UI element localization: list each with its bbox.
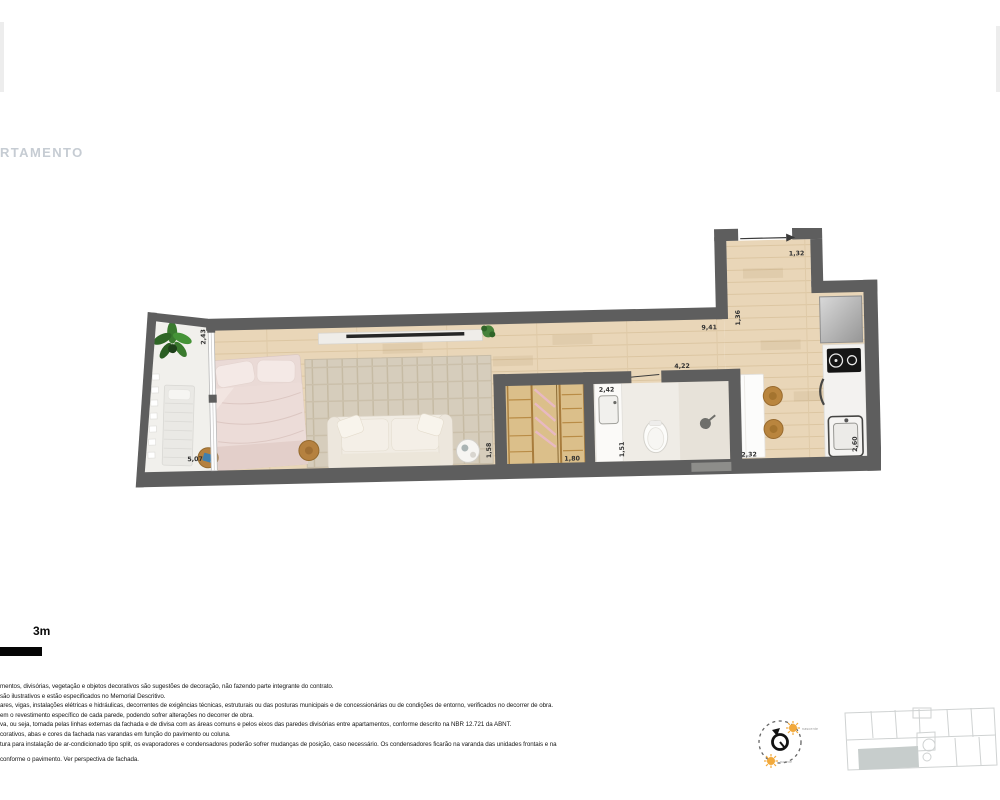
- dim-bedroom: 5,07: [187, 456, 203, 463]
- sunrise-sun-icon: [786, 721, 800, 735]
- fridge: [820, 296, 863, 343]
- page-edge-artifact-left: [0, 22, 4, 92]
- dim-kitchen: 2,60: [852, 436, 859, 452]
- disclaimer-line: corativos, abas e cores da fachada nas v…: [0, 730, 660, 740]
- disclaimer-line: em o revestimento específico de cada par…: [0, 711, 660, 721]
- sink-basin: [599, 395, 619, 423]
- lounge-mat: [162, 385, 194, 466]
- disclaimer-line: tura para instalação de ar-condicionado …: [0, 740, 660, 750]
- bed: [210, 354, 308, 470]
- keyplan-unit-highlight: [858, 746, 919, 770]
- wall-closet-bath-divider: [583, 372, 595, 464]
- side-table-right: [299, 440, 319, 460]
- dim-balcony: 2,43: [200, 329, 207, 345]
- kitchen: [818, 296, 867, 459]
- sunrise-label: nascente: [802, 727, 818, 731]
- wall-closet-left: [493, 374, 507, 466]
- wall-entry-right: [792, 228, 822, 239]
- dim-dining-table: 2,32: [741, 451, 757, 458]
- pillow: [257, 360, 295, 382]
- floor-plan: 2,43 5,07 1,58 1,80 2,42 1,51 4,22 2,32 …: [133, 228, 881, 500]
- wall-hall-right: [810, 239, 823, 287]
- dim-entry-door: 1,32: [789, 250, 805, 257]
- sun-path-icon: nascente poente: [746, 706, 826, 778]
- disclaimer-line: são ilustrativos e estão especificados n…: [0, 692, 660, 702]
- page-edge-artifact-right: [996, 26, 1000, 92]
- sunset-label: poente: [780, 760, 792, 764]
- keyplan: [843, 705, 1000, 775]
- disclaimer-line: ares, vigas, instalações elétricas e hid…: [0, 701, 660, 711]
- scale-label: 3m: [33, 624, 50, 638]
- compass-hand: [780, 742, 785, 748]
- disclaimer-block: mentos, divisórias, vegetação e objetos …: [0, 682, 660, 764]
- sunset-sun-icon: [764, 754, 778, 768]
- wall-niche: [691, 462, 731, 472]
- dim-bathroom-vanity: 2,42: [599, 387, 615, 394]
- wall-hall-left: [714, 237, 728, 319]
- dining-table: [740, 374, 765, 458]
- dim-hall-length: 9,41: [701, 324, 717, 331]
- wall-entry-left: [714, 229, 738, 242]
- coffee-table: [456, 439, 480, 463]
- scale-bar: [0, 647, 42, 656]
- sofa: [327, 412, 453, 472]
- dim-hall-width: 1,36: [735, 309, 742, 325]
- dim-dining: 4,22: [674, 363, 690, 370]
- wall-bath-right: [728, 369, 742, 461]
- disclaimer-line: conforme o pavimento. Ver perspectiva de…: [0, 755, 660, 765]
- page: { "page": { "title": "RTAMENTO", "backgr…: [0, 0, 1000, 800]
- dim-wardrobe: 1,80: [564, 455, 580, 462]
- page-title: RTAMENTO: [0, 145, 84, 160]
- dim-bathroom-width: 1,51: [619, 442, 626, 458]
- dim-living: 1,58: [486, 443, 493, 459]
- disclaimer-line: va, ou seja, tomada pelas linhas externa…: [0, 720, 660, 730]
- disclaimer-line: mentos, divisórias, vegetação e objetos …: [0, 682, 660, 692]
